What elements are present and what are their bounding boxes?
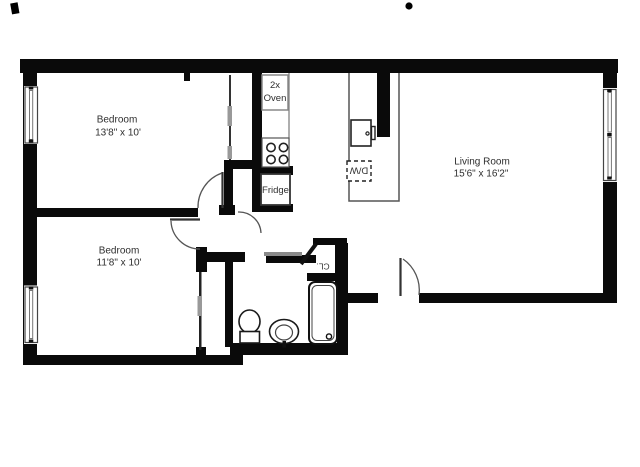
sliding-door-panel-icon (198, 296, 203, 316)
window-living-room-icon (603, 88, 618, 182)
artifact-dot (405, 2, 412, 9)
wall-oven-icon (351, 120, 371, 146)
kitchen-appliances: 2x Oven Fridge (261, 75, 290, 205)
wall-living-bottom-left (343, 293, 378, 303)
bedroom1-dims: 13'8" x 10' (95, 128, 141, 139)
doors (170, 172, 419, 296)
dishwasher-label: D/W (350, 165, 369, 176)
closet-label: CL. (316, 262, 329, 272)
wall-hall-south (196, 252, 245, 262)
wall-living-bottom-right (419, 293, 617, 303)
living-room-door-arc-icon (403, 259, 419, 295)
wall-island-stub (377, 70, 390, 137)
floorplan-canvas: D/W 2x Oven Fridge (0, 0, 640, 467)
oven-handle-icon (372, 127, 376, 140)
scan-artifacts (10, 2, 412, 14)
wall-top (20, 59, 618, 73)
bathtub-icon (309, 282, 337, 344)
wall-closet-top (313, 238, 347, 245)
bedroom1-name: Bedroom (97, 115, 138, 126)
wall-bathroom-west (225, 262, 233, 347)
bedroom2-door-arc-icon (171, 221, 200, 249)
bedroom2-name: Bedroom (99, 246, 140, 257)
artifact-mark (10, 2, 19, 14)
wall-closet-track-stub (184, 72, 190, 81)
bathroom-door-arc-icon (238, 212, 261, 233)
window-bedroom1-icon (24, 86, 38, 144)
wall-bottom-bedrooms (23, 355, 243, 365)
wall-closet-bottom (307, 273, 337, 281)
toilet-tank-icon (240, 332, 260, 344)
bedroom1-door-arc-icon (198, 173, 222, 208)
oven-label-line2: Oven (264, 93, 287, 104)
closet-rod-icon (264, 252, 302, 256)
bathroom-fixtures (239, 282, 337, 348)
sliding-door-panel-icon (228, 106, 233, 126)
oven-label-line1: 2x (270, 80, 280, 91)
fridge-label: Fridge (262, 185, 289, 196)
sliding-door-panel-icon (228, 146, 233, 159)
bathtub-drain-icon (326, 334, 331, 339)
living-room-dims: 15'6" x 16'2" (454, 169, 509, 180)
room-labels: Bedroom 13'8" x 10' Bedroom 11'8" x 10' … (95, 115, 510, 272)
toilet-bowl-icon (239, 310, 260, 333)
living-room-name: Living Room (454, 157, 510, 168)
wall-bedroom-divider (37, 208, 198, 217)
sink-faucet-icon (283, 341, 287, 348)
bedroom2-dims: 11'8" x 10' (97, 258, 142, 269)
window-bedroom2-icon (24, 286, 38, 345)
floorplan-drawing: D/W 2x Oven Fridge (0, 0, 640, 467)
